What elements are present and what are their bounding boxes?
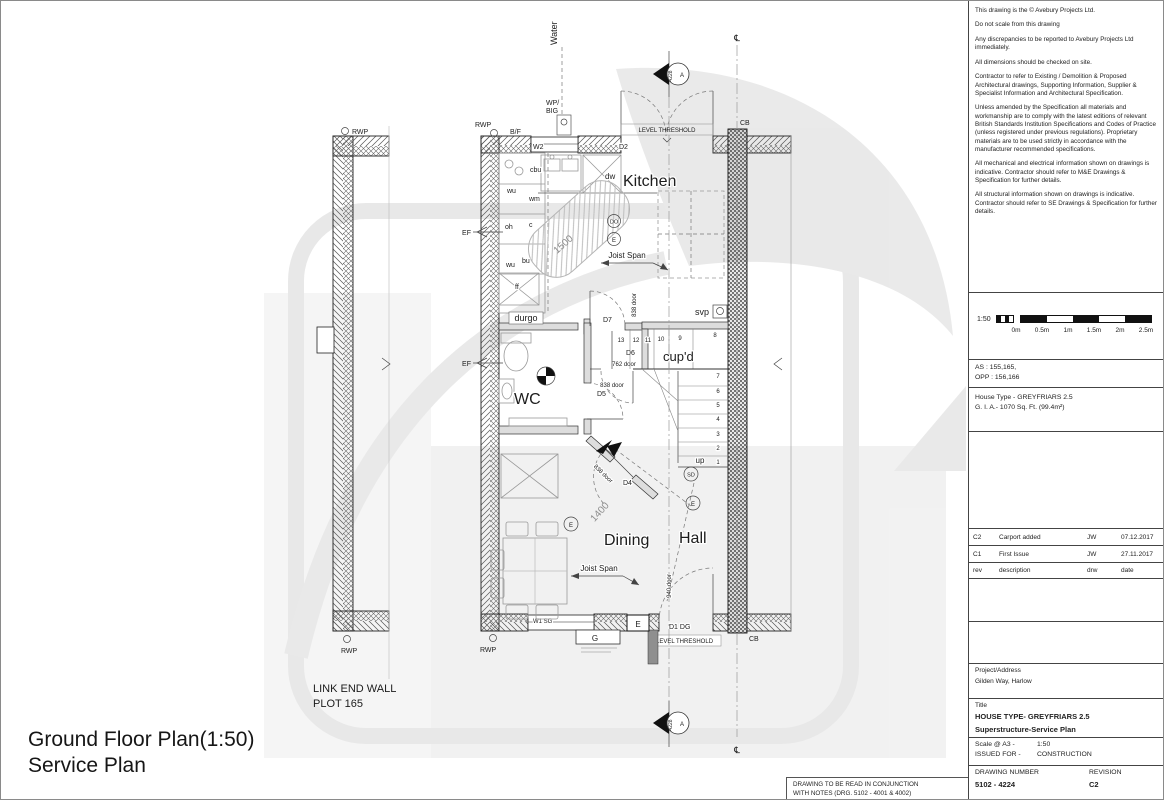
- room-cupd: cup'd: [663, 349, 694, 364]
- revision-row: C2 Carport added JW 07.12.2017: [969, 528, 1164, 545]
- drawing-number-section: DRAWING NUMBER 5102 - 4224 REVISION C2: [969, 765, 1164, 798]
- door-d2-label: D2: [619, 144, 628, 151]
- window-w1-label: W1 SG: [533, 619, 553, 625]
- scale-issued-section: Scale @ A3 - 1:50 ISSUED FOR - CONSTRUCT…: [969, 737, 1164, 765]
- scale-tick: 1m: [1063, 327, 1072, 334]
- revision-value: C2: [1089, 780, 1159, 789]
- wp-label-line1: WP/: [546, 100, 559, 107]
- project-section: Project/Address Gilden Way, Harlow: [969, 663, 1164, 698]
- svp-label: svp: [695, 307, 709, 317]
- rev-date: 27.11.2017: [1121, 551, 1161, 558]
- rev-header-date: date: [1121, 567, 1161, 574]
- room-hall: Hall: [679, 530, 707, 547]
- empty-box: [969, 578, 1164, 621]
- neighbour-label-line1: LINK END WALL: [313, 683, 396, 695]
- section-letter: A: [680, 73, 684, 79]
- stair-number: 8: [713, 333, 717, 339]
- note: Do not scale from this drawing: [975, 21, 1159, 29]
- rev-code: C2: [973, 534, 999, 541]
- stair-number: 10: [658, 337, 665, 343]
- stair-number: 9: [678, 336, 682, 342]
- rev-code: C1: [973, 551, 999, 558]
- rwp-label: RWP: [341, 648, 358, 655]
- unit-oh-label: oh: [505, 224, 513, 231]
- section-letter: A: [680, 722, 684, 728]
- note: This drawing is the © Avebury Projects L…: [975, 7, 1159, 15]
- drawing-heading-line1: Ground Floor Plan(1:50): [28, 727, 254, 753]
- electric-meter-label: E: [635, 620, 640, 629]
- rev-header-rev: rev: [973, 567, 999, 574]
- scale-bar-section: 1:50 0m 0.5m 1m 1.5m 2m 2.5m: [969, 292, 1164, 359]
- door-d5-label: D5: [597, 391, 606, 398]
- conjunction-note-line2: WITH NOTES (DRG. 5102 - 4001 & 4002): [793, 789, 968, 798]
- unit-wm-label: wm: [528, 196, 540, 203]
- sd-symbol: SD: [687, 473, 695, 479]
- unit-c-label: c: [529, 222, 533, 229]
- scale-tick: 2m: [1115, 327, 1124, 334]
- revision-header-row: rev description drw date: [969, 562, 1164, 578]
- scale-bar-ticks: 0m 0.5m 1m 1.5m 2m 2.5m: [1016, 327, 1146, 337]
- centreline-symbol: ℄: [733, 745, 740, 755]
- door-d1-label: D1 DG: [669, 624, 690, 631]
- drawing-number-value: 5102 - 4224: [975, 780, 1089, 789]
- title-section: Title HOUSE TYPE- GREYFRIARS 2.5 Superst…: [969, 698, 1164, 737]
- party-wall: [728, 129, 747, 633]
- wp-label-line2: BIG: [546, 108, 558, 115]
- drawing-heading-line2: Service Plan: [28, 753, 254, 779]
- rev-header-drw: drw: [1087, 567, 1121, 574]
- empty-box: [969, 621, 1164, 663]
- threshold-bar: [648, 630, 658, 664]
- stair-number: 13: [618, 338, 625, 344]
- section-sheet-number: 4228: [668, 719, 674, 730]
- plot-numbers-section: AS : 155,165, OPP : 156,166: [969, 359, 1164, 387]
- stair-number: 12: [633, 338, 640, 344]
- durgo-label: durgo: [514, 313, 537, 323]
- unit-dw-label: dw: [605, 172, 615, 181]
- room-kitchen: Kitchen: [623, 173, 676, 190]
- issued-label: ISSUED FOR -: [975, 751, 1037, 758]
- issued-value: CONSTRUCTION: [1037, 751, 1092, 758]
- cb-label: CB: [749, 636, 759, 643]
- room-dining: Dining: [604, 532, 649, 549]
- rwp-label: RWP: [352, 129, 369, 136]
- title-label: Title: [975, 702, 1159, 709]
- unit-wu-label: wu: [505, 262, 515, 269]
- stair-number: 4: [716, 417, 720, 423]
- cb-label: CB: [740, 120, 750, 127]
- scale-tick: 0.5m: [1035, 327, 1049, 334]
- drawing-sheet: RWP RWP LINK END WALL PLOT 165 W2: [0, 0, 1164, 800]
- general-notes: This drawing is the © Avebury Projects L…: [969, 1, 1164, 292]
- title-line1: HOUSE TYPE- GREYFRIARS 2.5: [975, 712, 1159, 722]
- door-838-dim: 838 door: [600, 383, 624, 389]
- door-838-dim: 838 door: [632, 293, 638, 317]
- level-threshold-bottom-label: LEVEL THRESHOLD: [656, 639, 714, 645]
- title-block: This drawing is the © Avebury Projects L…: [968, 1, 1164, 800]
- house-type-line2: G. I. A.- 1070 Sq. Ft. (99.4m²): [975, 403, 1159, 413]
- door-940-dim: 940 door: [667, 574, 673, 598]
- door-762-dim: 762 door: [612, 362, 636, 368]
- stair-up-label: up: [696, 456, 705, 465]
- conjunction-note: DRAWING TO BE READ IN CONJUNCTION WITH N…: [786, 777, 969, 800]
- plots-opp: OPP : 156,166: [975, 373, 1159, 383]
- ef-label: EF: [462, 230, 471, 237]
- note: All dimensions should be checked on site…: [975, 59, 1159, 67]
- revision-row: C1 First Issue JW 27.11.2017: [969, 545, 1164, 562]
- project-label: Project/Address: [975, 667, 1159, 674]
- note: Unless amended by the Specification all …: [975, 104, 1159, 154]
- note: All structural information shown on draw…: [975, 191, 1159, 216]
- e-symbol: E: [691, 502, 695, 508]
- stair-number: 5: [716, 403, 720, 409]
- title-line2: Superstructure-Service Plan: [975, 725, 1159, 735]
- conjunction-note-line1: DRAWING TO BE READ IN CONJUNCTION: [793, 780, 968, 789]
- project-value: Gilden Way, Harlow: [975, 678, 1159, 685]
- rev-header-description: description: [999, 567, 1087, 574]
- scale-tick: 0m: [1011, 327, 1020, 334]
- rwp-label: RWP: [475, 122, 492, 129]
- window-w2-label: W2: [533, 144, 544, 151]
- note: Any discrepancies to be reported to Aveb…: [975, 36, 1159, 53]
- unit-bu-label: bu: [522, 258, 530, 265]
- scale-ratio: 1:50: [977, 316, 991, 323]
- note: Contractor to refer to Existing / Demoli…: [975, 73, 1159, 98]
- stair-number: 6: [716, 389, 720, 395]
- unit-wu-label: wu: [506, 188, 516, 195]
- e-symbol: E: [612, 238, 616, 244]
- centreline-symbol: ℄: [733, 33, 740, 43]
- joist-span-label: Joist Span: [608, 251, 645, 260]
- scale-label: Scale @ A3 -: [975, 741, 1037, 748]
- sink-unit: [541, 155, 581, 191]
- plots-as: AS : 155,165,: [975, 363, 1159, 373]
- ef-label: EF: [462, 361, 471, 368]
- rev-description: First Issue: [999, 551, 1087, 558]
- stair-number: 3: [716, 432, 720, 438]
- note: All mechanical and electrical informatio…: [975, 160, 1159, 185]
- scale-bar: [1020, 315, 1152, 323]
- rev-date: 07.12.2017: [1121, 534, 1161, 541]
- drawing-number-label: DRAWING NUMBER: [975, 769, 1089, 776]
- rev-drawn-by: JW: [1087, 534, 1121, 541]
- bf-label: B/F: [510, 129, 521, 136]
- rwp-symbol: [491, 130, 498, 137]
- door-d4-label: D4: [623, 480, 632, 487]
- unit-ff-label: ff: [515, 284, 519, 291]
- room-wc: WC: [514, 391, 541, 408]
- wall-pier: [317, 327, 334, 353]
- scale-tick: 2.5m: [1139, 327, 1153, 334]
- rev-drawn-by: JW: [1087, 551, 1121, 558]
- rev-description: Carport added: [999, 534, 1087, 541]
- floor-plan-drawing: RWP RWP LINK END WALL PLOT 165 W2: [1, 1, 969, 800]
- section-sheet-number: 4228: [668, 70, 674, 81]
- e-symbol: E: [569, 523, 573, 529]
- water-label: Water: [549, 21, 559, 45]
- house-type-line1: House Type - GREYFRIARS 2.5: [975, 393, 1159, 403]
- do-symbol: DO: [610, 220, 619, 226]
- door-d7-label: D7: [603, 317, 612, 324]
- house-type-section: House Type - GREYFRIARS 2.5 G. I. A.- 10…: [969, 387, 1164, 431]
- wc-toilet: [504, 341, 528, 371]
- continuation-arrow-icon: [774, 358, 782, 370]
- unit-cbu-label: cbu: [530, 167, 541, 174]
- drawing-heading: Ground Floor Plan(1:50) Service Plan: [28, 727, 254, 780]
- scale-tick: 1.5m: [1087, 327, 1101, 334]
- stair-number: 7: [716, 374, 720, 380]
- level-threshold-top-label: LEVEL THRESHOLD: [638, 128, 696, 134]
- scale-value: 1:50: [1037, 741, 1050, 748]
- stair-number: 11: [645, 338, 652, 344]
- rwp-symbol: [342, 128, 349, 135]
- neighbour-label-line2: PLOT 165: [313, 698, 363, 710]
- door-d6-label: D6: [626, 350, 635, 357]
- wc-radiator: [509, 418, 567, 426]
- scale-bar-subdivisions: [996, 315, 1014, 323]
- rwp-label: RWP: [480, 647, 497, 654]
- joist-span-label: Joist Span: [580, 564, 617, 573]
- empty-box: [969, 431, 1164, 528]
- revision-label: REVISION: [1089, 769, 1159, 776]
- gas-meter-label: G: [592, 634, 598, 643]
